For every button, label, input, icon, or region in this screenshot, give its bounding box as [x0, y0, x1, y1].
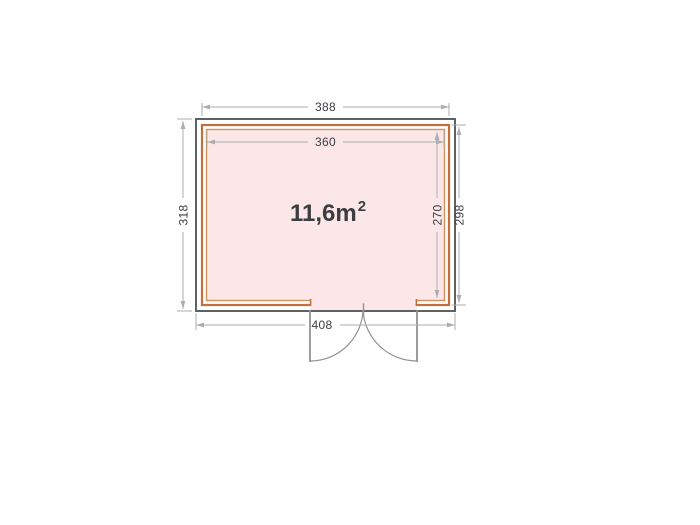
area-value: 11,6m: [290, 200, 357, 227]
dim-roof-depth-label: 318: [177, 205, 191, 226]
dim-interior-depth-label: 270: [431, 205, 445, 226]
arrow-388-right: [441, 105, 449, 110]
area-label: 11,6m2: [290, 198, 366, 227]
dim-interior-width-label: 360: [315, 135, 336, 149]
dim-roof-width-label: 408: [312, 318, 333, 332]
arrow-318-bottom: [181, 301, 186, 309]
arrow-408-right: [447, 323, 455, 328]
door-right-swing-arc: [363, 311, 417, 361]
dim-wall-width-label: 388: [315, 100, 336, 114]
double-door: [310, 304, 417, 361]
arrow-298-top: [457, 127, 462, 135]
area-superscript: 2: [358, 198, 366, 215]
floor-plan-page: 388 360 318 270 298 408 11,6m2: [0, 0, 700, 525]
arrow-408-left: [196, 323, 204, 328]
arrow-388-left: [202, 105, 210, 110]
arrow-318-top: [181, 121, 186, 129]
dim-wall-depth-label: 298: [453, 205, 467, 226]
floor-plan-canvas: 388 360 318 270 298 408 11,6m2: [0, 0, 700, 525]
arrow-298-bottom: [457, 295, 462, 303]
